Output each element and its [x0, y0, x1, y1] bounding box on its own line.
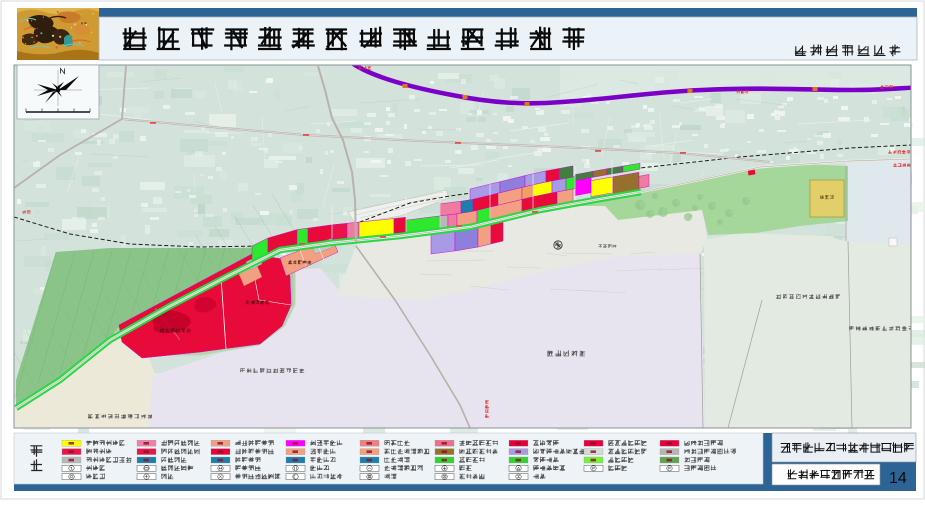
svg-text:14: 14: [889, 470, 907, 487]
